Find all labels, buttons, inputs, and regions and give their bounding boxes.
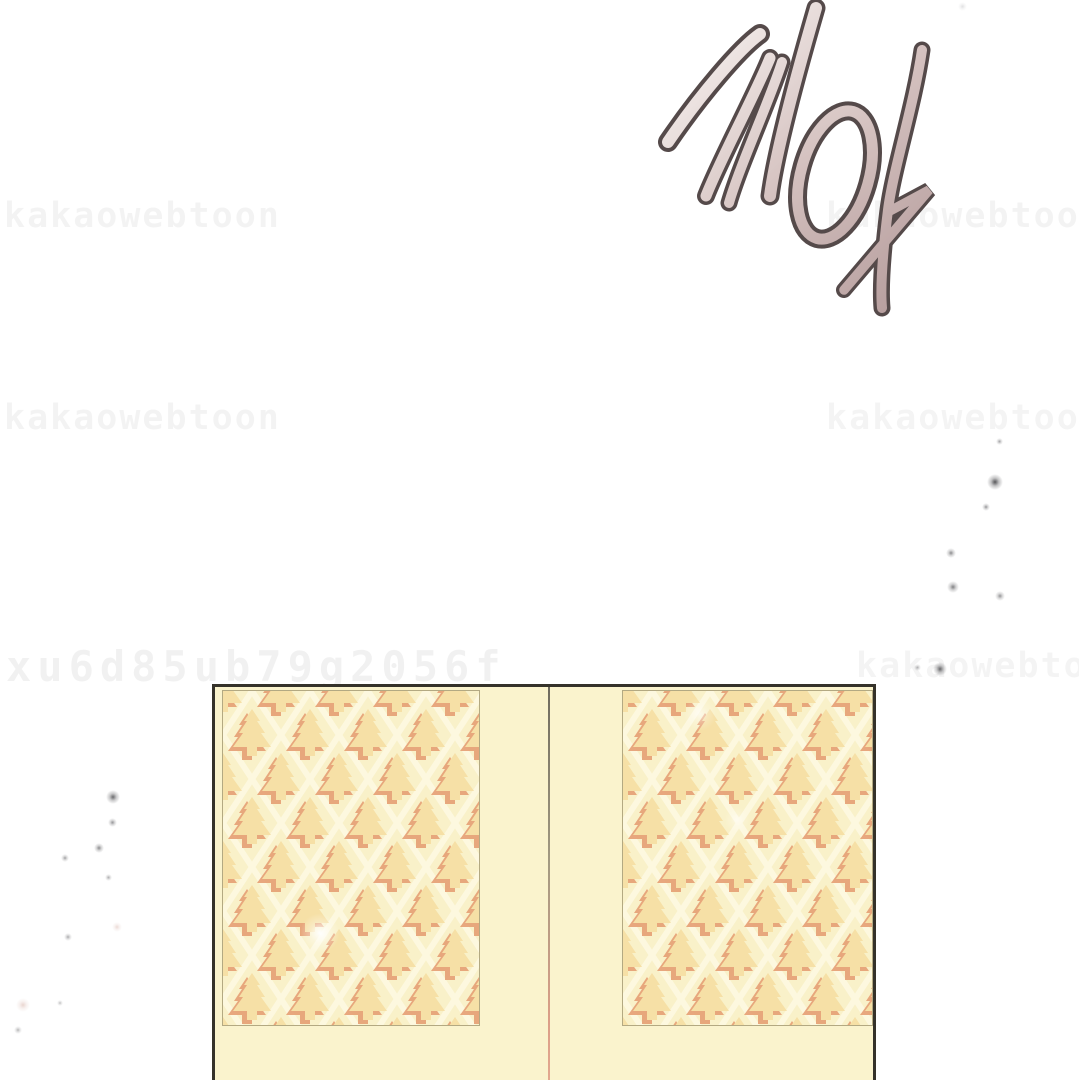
door-right-panel — [622, 690, 873, 1026]
sparkle-dot — [106, 790, 120, 804]
door — [212, 684, 876, 1080]
sfx-creak-drawing — [630, 0, 960, 330]
sfx-creak-lettering — [630, 0, 960, 330]
sparkle-dot — [64, 933, 72, 941]
sparkle-dot — [61, 854, 69, 862]
watermark-text: kakaowebtoon — [856, 646, 1079, 686]
sparkle-dot — [987, 474, 1003, 490]
door-left-panel — [222, 690, 480, 1026]
watermark-text: kakaowebtoon — [4, 398, 281, 438]
watermark-text: kakaowebtoon — [826, 398, 1079, 438]
sparkle-dot — [105, 874, 112, 881]
sparkle-dot — [995, 591, 1005, 601]
comic-panel: kakaowebtoonkakaowebtoonkakaowebtoonkaka… — [0, 0, 1079, 1080]
sparkle-dot — [982, 503, 990, 511]
sparkle-dot — [112, 922, 122, 932]
sparkle-dot — [14, 1026, 22, 1034]
sparkle-dot — [16, 998, 30, 1012]
sparkle-dot — [94, 843, 104, 853]
door-left-panel-pattern — [223, 691, 480, 1026]
sparkle-dot — [947, 581, 959, 593]
door-right-panel-pattern — [623, 691, 873, 1026]
door-center-divider — [548, 687, 550, 1080]
sparkle-dot — [108, 818, 117, 827]
sparkle-dot — [946, 548, 956, 558]
sparkle-dot — [57, 1000, 63, 1006]
sparkle-dot — [996, 438, 1003, 445]
watermark-text: kakaowebtoon — [4, 196, 281, 236]
